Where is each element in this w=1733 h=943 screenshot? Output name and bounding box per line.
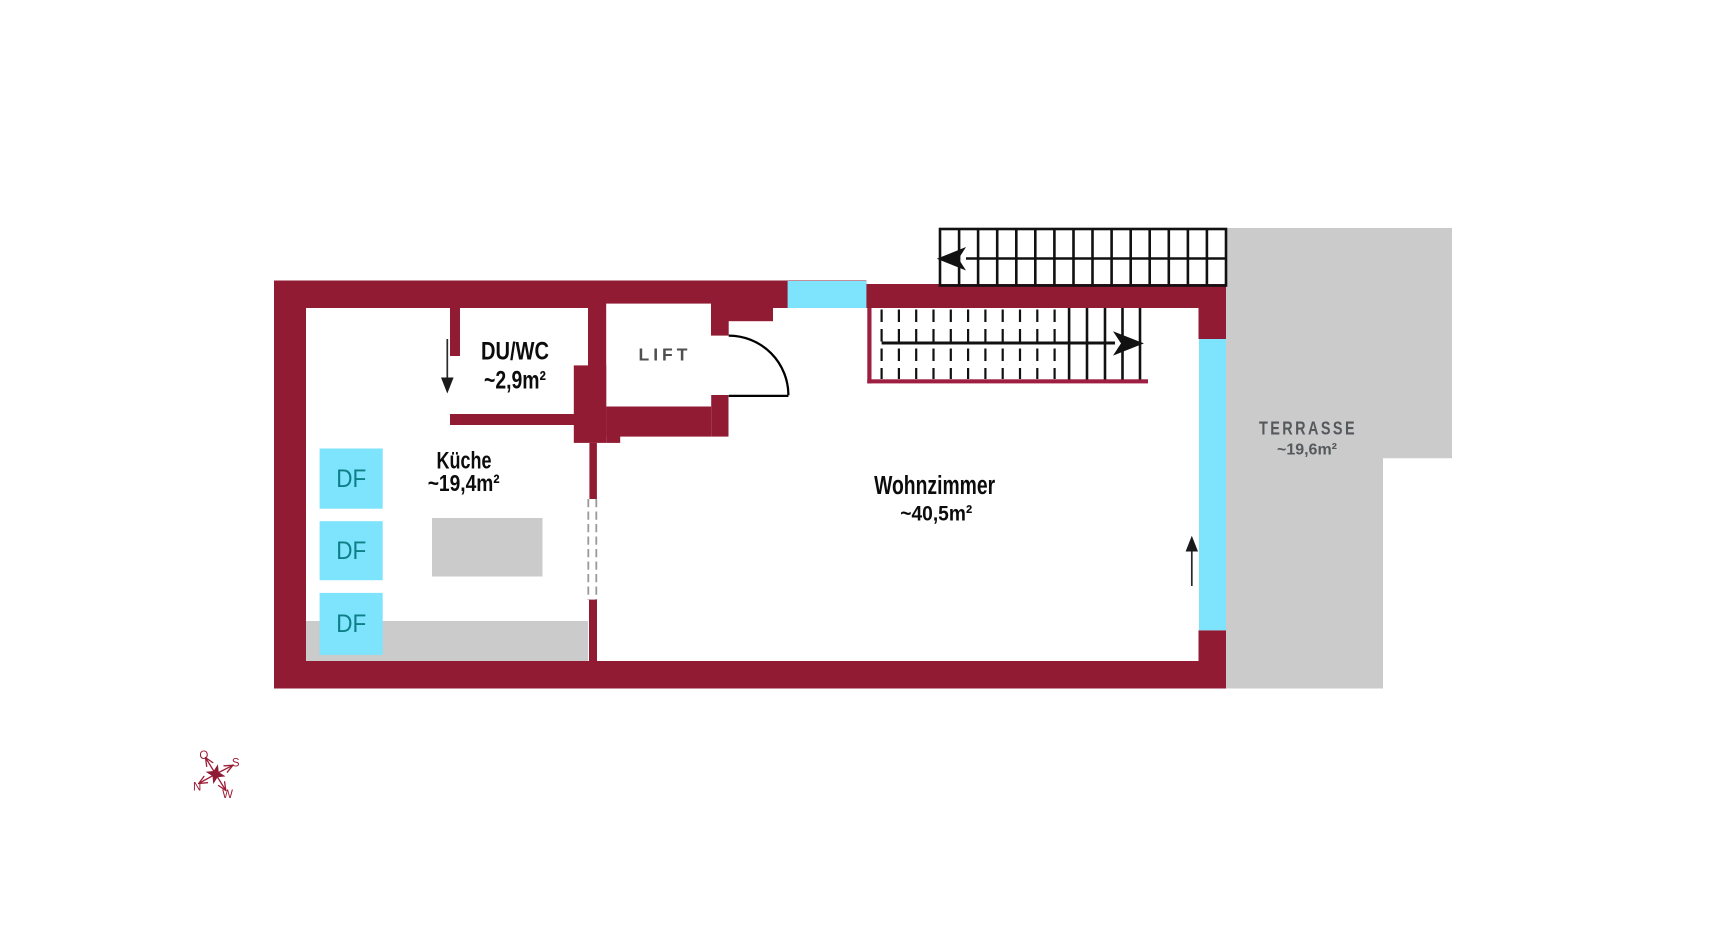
- svg-text:~40,5m²: ~40,5m²: [900, 501, 972, 525]
- svg-text:N: N: [193, 782, 201, 794]
- svg-text:S: S: [232, 758, 240, 770]
- svg-text:DF: DF: [336, 465, 366, 493]
- svg-text:W: W: [222, 789, 233, 801]
- svg-text:~19,6m²: ~19,6m²: [1277, 442, 1337, 459]
- svg-text:~19,4m²: ~19,4m²: [428, 470, 500, 496]
- svg-text:LIFT: LIFT: [639, 345, 692, 365]
- svg-text:TERRASSE: TERRASSE: [1259, 418, 1357, 438]
- svg-text:O: O: [199, 750, 208, 762]
- svg-text:DF: DF: [336, 610, 366, 638]
- svg-text:DF: DF: [336, 537, 366, 565]
- svg-text:Wohnzimmer: Wohnzimmer: [874, 472, 995, 500]
- svg-text:~2,9m²: ~2,9m²: [484, 367, 546, 395]
- svg-text:DU/WC: DU/WC: [481, 338, 549, 366]
